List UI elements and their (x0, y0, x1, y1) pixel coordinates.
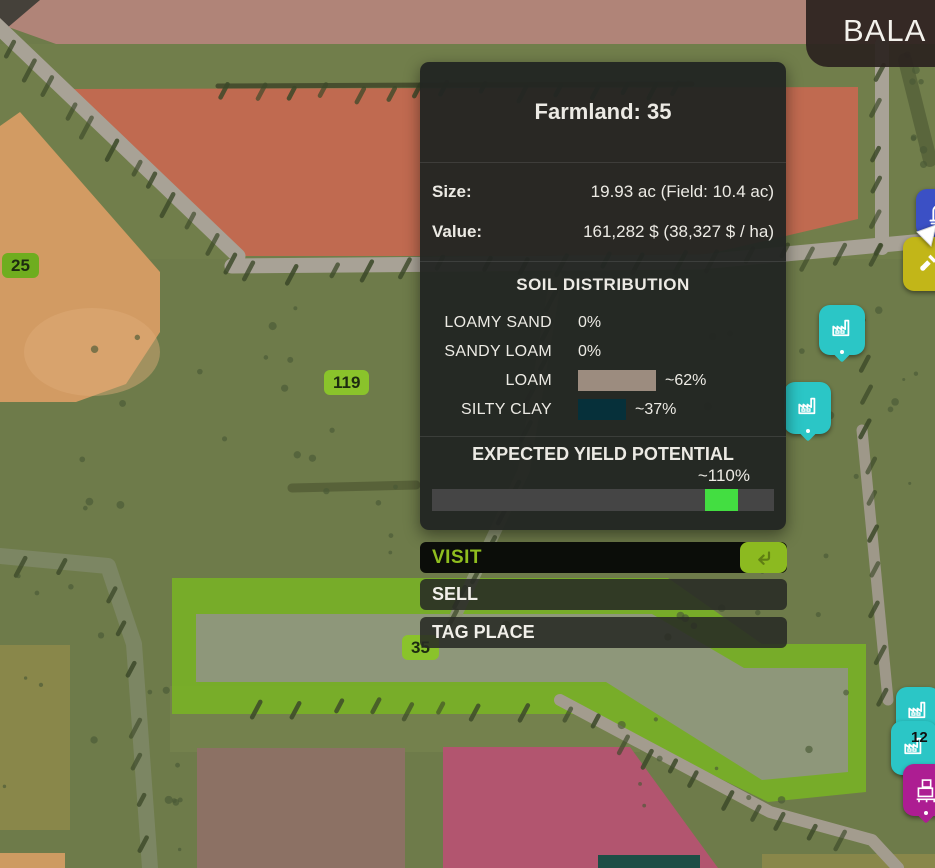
farmland-info-panel: Farmland: 35 Size: 19.93 ac (Field: 10.4… (420, 62, 786, 530)
poi-pin-dot (806, 429, 810, 433)
game-map-screen: 25 119 35 12 Farmland: 35 Size: 19.93 ac… (0, 0, 935, 868)
poi-pin-dot (924, 811, 928, 815)
map-name-label: BALA (843, 13, 926, 48)
field-number-12: 12 (911, 729, 928, 746)
poi-factory-teal-1[interactable] (819, 305, 865, 355)
soil-row-sandy-loam: SANDY LOAM 0% (432, 337, 774, 366)
soil-label: SILTY CLAY (432, 401, 552, 419)
soil-heading: SOIL DISTRIBUTION (432, 272, 774, 298)
soil-value: ~62% (665, 372, 706, 390)
sell-label: SELL (432, 584, 478, 604)
tag-place-button[interactable]: TAG PLACE (420, 617, 787, 648)
field-badge-25: 25 (2, 253, 39, 278)
soil-label: SANDY LOAM (432, 343, 552, 361)
value-value: 161,282 $ (38,327 $ / ha) (583, 222, 774, 242)
soil-row-loamy-sand: LOAMY SAND 0% (432, 308, 774, 337)
field-badge-119: 119 (324, 370, 369, 395)
size-row: Size: 19.93 ac (Field: 10.4 ac) (432, 179, 774, 205)
soil-value: 0% (578, 343, 601, 361)
soil-value: 0% (578, 314, 601, 332)
yield-section: EXPECTED YIELD POTENTIAL ~110% (420, 437, 786, 511)
enter-key-icon (740, 542, 787, 573)
panel-header: Farmland: 35 (420, 62, 786, 163)
soil-value: ~37% (635, 401, 676, 419)
visit-button[interactable]: VISIT (420, 542, 787, 573)
soil-label: LOAM (432, 372, 552, 390)
poi-pallets-magenta[interactable] (903, 764, 935, 816)
map-cursor[interactable] (915, 224, 935, 249)
poi-pin-dot (840, 350, 844, 354)
soil-swatch-silty-clay (578, 399, 626, 420)
size-label: Size: (432, 182, 472, 202)
yield-progress-marker (705, 489, 738, 511)
tag-place-label: TAG PLACE (432, 622, 535, 642)
value-row: Value: 161,282 $ (38,327 $ / ha) (432, 219, 774, 245)
map-name-box: BALA (806, 0, 935, 67)
soil-distribution-section: SOIL DISTRIBUTION LOAMY SAND 0% SANDY LO… (420, 262, 786, 437)
yield-value: ~110% (432, 465, 774, 487)
soil-row-silty-clay: SILTY CLAY ~37% (432, 395, 774, 424)
size-value: 19.93 ac (Field: 10.4 ac) (591, 182, 774, 202)
soil-swatch-loam (578, 370, 656, 391)
panel-title: Farmland: 35 (535, 99, 672, 125)
soil-row-loam: LOAM ~62% (432, 366, 774, 395)
poi-factory-teal-2[interactable] (784, 382, 831, 434)
yield-progress-track (432, 489, 774, 511)
yield-heading: EXPECTED YIELD POTENTIAL (432, 443, 774, 465)
sell-button[interactable]: SELL (420, 579, 787, 610)
soil-label: LOAMY SAND (432, 314, 552, 332)
visit-label: VISIT (432, 547, 482, 568)
value-label: Value: (432, 222, 482, 242)
panel-stats: Size: 19.93 ac (Field: 10.4 ac) Value: 1… (420, 163, 786, 262)
